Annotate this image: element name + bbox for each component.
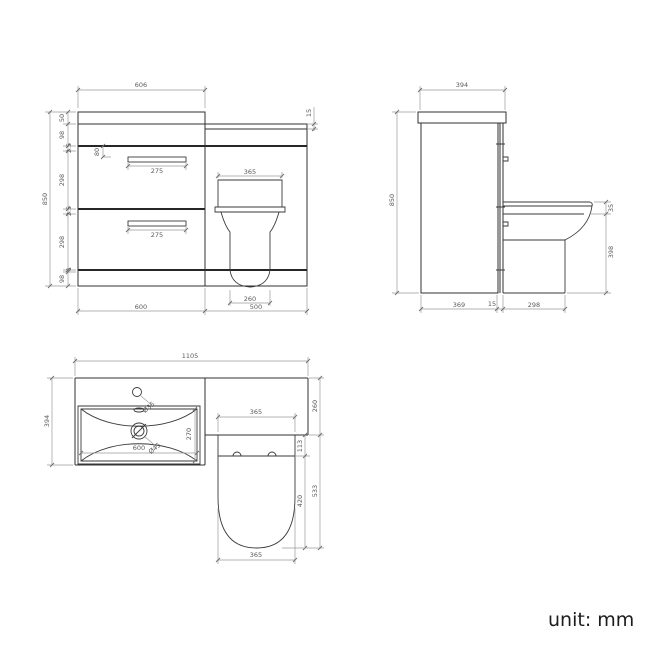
dim-front-drawer2-height: 298 xyxy=(58,236,66,248)
technical-drawing: 606 15 50 98 2.5 298 2.5 298 1 98 850 80 xyxy=(0,0,650,650)
technical-drawing-page: 606 15 50 98 2.5 298 2.5 298 1 98 850 80 xyxy=(0,0,650,650)
seat-hinges xyxy=(233,452,276,456)
dim-front-cistern-width: 365 xyxy=(244,168,256,176)
dim-plan-cabinet-depth: 394 xyxy=(43,415,51,427)
dim-front-gap-bottom: 1 xyxy=(65,267,73,271)
dim-plan-cistern-top-depth: 260 xyxy=(311,400,319,412)
drawer2-handle xyxy=(128,221,186,226)
dim-plan-hinge-inset: 113 xyxy=(296,440,304,452)
dim-front-counter-thickness-right: 15 xyxy=(305,109,313,117)
dim-front-handle2-width: 275 xyxy=(151,231,163,239)
dim-plan-seat-length: 533 xyxy=(311,485,319,497)
dim-plan-seat-inner-length: 420 xyxy=(296,495,304,507)
plan-toilet-outline xyxy=(218,435,295,548)
dim-plan-tap-hole-diameter: Ø35 xyxy=(141,400,156,415)
front-view-dimensions: 606 15 50 98 2.5 298 2.5 298 1 98 850 80 xyxy=(41,81,318,315)
dim-plan-seat-width-bottom: 365 xyxy=(250,551,262,559)
front-view-outline xyxy=(78,112,307,286)
dim-side-seat-height: 35 xyxy=(607,204,615,212)
plan-view: 1105 394 600 270 Ø35 Ø45 365 365 xyxy=(43,352,324,564)
side-handle-profiles xyxy=(503,157,508,226)
dim-side-pan-height: 398 xyxy=(607,246,615,258)
dim-plan-waste-diameter: Ø45 xyxy=(147,441,162,456)
dim-front-counter-width: 606 xyxy=(135,81,147,89)
dim-side-back-panel: 15 xyxy=(488,300,496,308)
dim-front-gap-top: 2.5 xyxy=(65,143,73,153)
dim-side-depth: 394 xyxy=(456,81,468,89)
dim-front-pan-base-width: 260 xyxy=(244,295,256,303)
side-view-dimensions: 394 850 35 398 369 15 298 xyxy=(388,81,615,313)
dim-front-handle1-width: 275 xyxy=(151,167,163,175)
dim-front-counter-height: 50 xyxy=(58,114,66,122)
dim-front-vanity-width: 600 xyxy=(135,303,147,311)
dim-side-cabinet-depth: 369 xyxy=(453,301,465,309)
side-view: 394 850 35 398 369 15 298 xyxy=(388,81,615,313)
side-view-outline xyxy=(418,112,508,293)
drawer1-handle xyxy=(128,157,186,162)
dim-front-plinth-height: 98 xyxy=(58,275,66,283)
dim-front-top-panel: 98 xyxy=(58,131,66,139)
dim-side-pan-projection: 298 xyxy=(528,301,540,309)
dim-front-drawer1-height: 298 xyxy=(58,174,66,186)
unit-label: unit: mm xyxy=(548,609,634,631)
tap-hole xyxy=(133,388,142,397)
dim-front-total-height: 850 xyxy=(41,193,49,205)
dim-side-total-height: 850 xyxy=(388,194,396,206)
dim-front-wc-unit-width: 500 xyxy=(250,303,262,311)
dim-front-handle-offset: 80 xyxy=(93,148,101,156)
side-toilet-outline xyxy=(503,202,592,293)
front-view: 606 15 50 98 2.5 298 2.5 298 1 98 850 80 xyxy=(41,81,318,315)
dim-plan-basin-depth: 270 xyxy=(185,428,193,440)
dim-front-gap-mid: 2.5 xyxy=(65,206,73,216)
dim-plan-total-width: 1105 xyxy=(182,352,199,360)
dim-plan-basin-width: 600 xyxy=(133,444,145,452)
dim-plan-seat-width: 365 xyxy=(250,408,262,416)
